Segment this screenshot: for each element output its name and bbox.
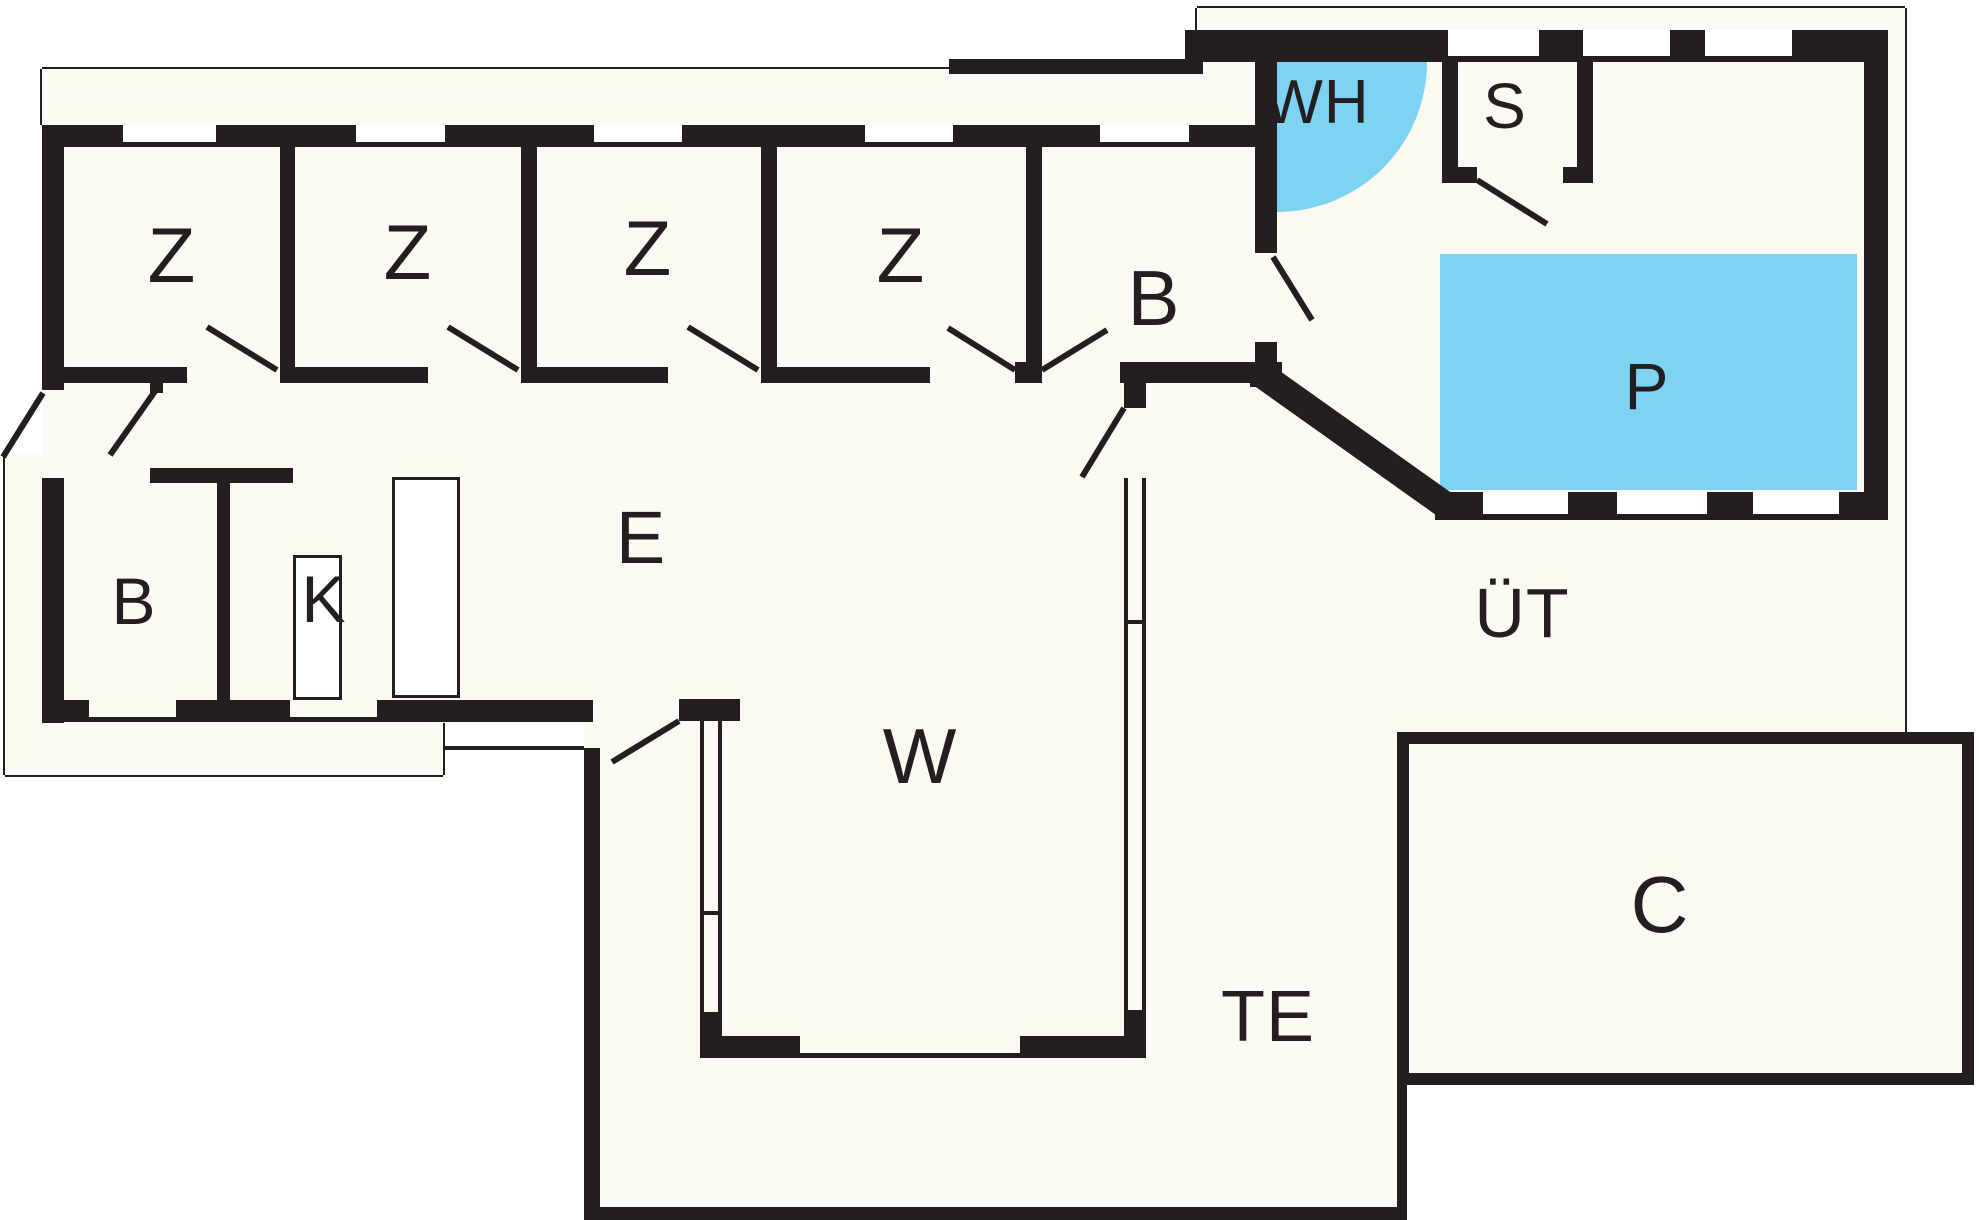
door-z2: [448, 327, 518, 370]
room-label-z4: Z: [877, 216, 926, 294]
room-label-k: K: [301, 566, 346, 632]
room-label-wh: WH: [1264, 72, 1369, 134]
wall-pool-house-oblique: [1258, 372, 1448, 507]
room-label-p: P: [1624, 353, 1669, 419]
room-label-ut: ÜT: [1474, 578, 1569, 648]
door-z3: [688, 327, 758, 370]
door-z4: [948, 328, 1015, 370]
door-s-room: [1477, 180, 1547, 224]
room-label-c: C: [1631, 865, 1690, 945]
door-b-wing: [1042, 330, 1107, 370]
room-label-z3: Z: [624, 209, 673, 287]
room-label-s: S: [1483, 74, 1527, 138]
room-label-te: TE: [1221, 981, 1315, 1053]
room-label-e: E: [616, 501, 666, 575]
door-e-south: [612, 721, 679, 762]
room-label-w: W: [883, 717, 958, 795]
door-z1: [207, 327, 277, 370]
door-pool-house: [1273, 257, 1312, 320]
door-e-east: [1082, 408, 1124, 477]
room-label-z2: Z: [384, 213, 433, 291]
door-entry-exterior: [3, 393, 43, 457]
door-b-small: [110, 387, 158, 455]
floor-plan-canvas: ZZZZBWHSPÜTEBKWTEC: [0, 0, 1980, 1220]
room-label-b-small: B: [111, 568, 156, 634]
room-label-z1: Z: [148, 216, 197, 294]
door-swing-layer: [0, 0, 1980, 1220]
room-label-b-wing: B: [1127, 259, 1180, 337]
